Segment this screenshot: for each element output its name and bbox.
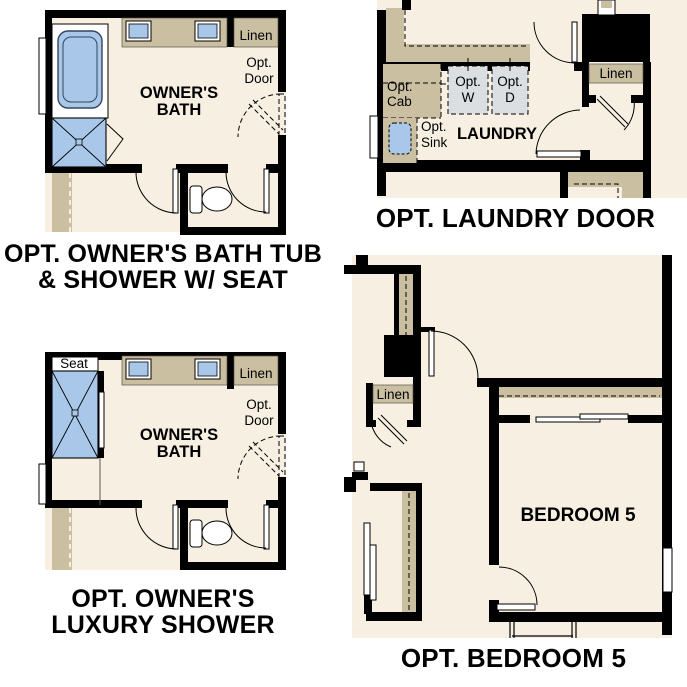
opt-sink-label: Opt. Sink: [421, 119, 448, 150]
svg-text:W: W: [462, 90, 475, 105]
seat-label: Seat: [60, 356, 88, 371]
hall-closet-strip: [52, 508, 72, 570]
caption-bedroom5: OPT. BEDROOM 5: [344, 645, 683, 672]
window-icon: [370, 116, 378, 158]
vanity-counter: [122, 356, 227, 385]
window-icon: [39, 38, 46, 114]
sink-icon: [126, 21, 151, 41]
toilet-icon: [190, 520, 232, 547]
svg-text:OWNER'S: OWNER'S: [140, 84, 218, 102]
opt-cab-label: Opt. Cab: [387, 79, 413, 109]
luxury-shower-plan: Seat Linen: [0, 330, 310, 575]
svg-text:Opt.: Opt.: [246, 397, 272, 412]
svg-text:Opt.: Opt.: [497, 74, 523, 89]
window-icon: [663, 548, 672, 592]
caption-owners-bath-tub: OPT. OWNER'S BATH TUB & SHOWER W/ SEAT: [0, 241, 326, 293]
svg-text:OWNER'S: OWNER'S: [140, 426, 218, 444]
linen-closet: Linen: [234, 18, 278, 47]
svg-text:Opt.: Opt.: [455, 74, 481, 89]
toilet-icon: [190, 186, 232, 213]
svg-text:Opt.: Opt.: [387, 79, 413, 94]
optional-sink: [383, 118, 417, 163]
svg-text:Cab: Cab: [387, 94, 412, 109]
svg-text:Sink: Sink: [421, 135, 448, 150]
svg-text:Opt.: Opt.: [421, 119, 447, 134]
top-door-cut: [598, 0, 615, 15]
svg-text:D: D: [505, 90, 515, 105]
window-icon: [354, 462, 364, 471]
linen-label: Linen: [599, 66, 632, 81]
floorplan-options-sheet: Linen OWNER'S BATH Opt. Door OPT. OW: [0, 0, 687, 687]
opt-door-label: Opt. Door: [244, 397, 274, 428]
caption-laundry-door: OPT. LAUNDRY DOOR: [346, 205, 685, 232]
svg-text:BEDROOM 5: BEDROOM 5: [520, 505, 636, 526]
svg-text:Door: Door: [244, 413, 274, 428]
shower-seat: Seat: [52, 356, 98, 371]
linen-closet: Linen: [234, 356, 278, 385]
linen-label: Linen: [376, 387, 409, 402]
window-icon: [39, 464, 46, 504]
sink-icon: [126, 359, 151, 379]
svg-text:LAUNDRY: LAUNDRY: [457, 125, 537, 143]
opt-door-label: Opt. Door: [244, 55, 274, 86]
vanity-counter: [122, 18, 227, 47]
linen-label: Linen: [239, 28, 272, 43]
svg-text:BATH: BATH: [157, 101, 202, 119]
bedroom5-plan: Linen BEDROOM 5: [344, 255, 687, 640]
linen-label: Linen: [239, 366, 272, 381]
caption-luxury-shower: OPT. OWNER'S LUXURY SHOWER: [0, 586, 326, 638]
room-label: LAUNDRY: [457, 125, 537, 143]
laundry-plan: Linen LAUNDRY Opt. Cab Opt: [344, 0, 687, 200]
room-label: BEDROOM 5: [520, 505, 636, 526]
shower-door: [99, 392, 104, 448]
svg-text:BATH: BATH: [157, 443, 202, 461]
sink-icon: [195, 21, 220, 41]
svg-text:Opt.: Opt.: [246, 55, 272, 70]
owners-bath-tub-plan: Linen OWNER'S BATH Opt. Door: [0, 0, 310, 236]
bathtub: [52, 24, 108, 118]
sink-icon: [195, 359, 220, 379]
hall-closet-strip: [52, 173, 72, 232]
svg-text:Door: Door: [244, 71, 274, 86]
